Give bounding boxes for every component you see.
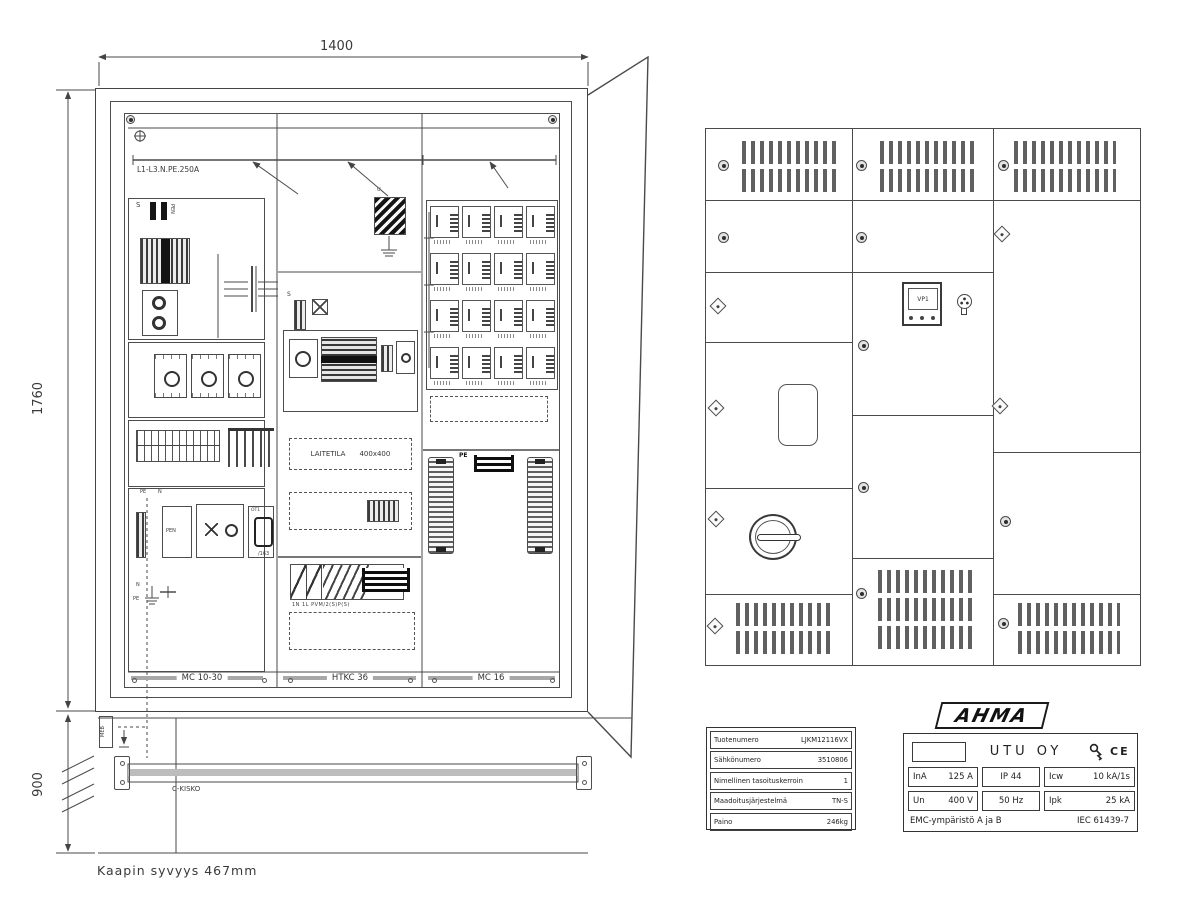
fuse-dial-small [401,353,411,363]
dim-width-label: 1400 [320,40,353,53]
s-mark-2: S [287,292,291,298]
row-value: 3510806 [818,756,848,764]
rating-cell-ip: IP 44 [982,767,1040,787]
cell-value: 25 kA [1106,796,1130,806]
meter-button[interactable] [909,316,913,320]
socket-module [462,253,491,285]
laitetila-label: LAITETILA [311,450,346,458]
meb-label: MEB [101,726,106,737]
reserved-space-3 [289,612,415,650]
cell-label: 50 Hz [999,796,1023,806]
socket-module [526,347,555,379]
depth-note: Kaapin syvyys 467mm [97,865,257,878]
row-label: Maadoitusjärjestelmä [714,797,787,805]
ventilation-grille [736,631,832,654]
fuse-dial [295,351,311,367]
terminal-strip [136,430,220,462]
mcb-module [291,565,307,599]
column-label-mc16: MC 16 [473,673,510,683]
s-mark: S [136,202,140,209]
table-row: Tuotenumero LJKM12116VX [710,731,852,749]
dim-height-label: 1760 [32,382,45,415]
socket-module [526,253,555,285]
row-label: Nimellinen tasoituskerroin [714,777,803,785]
socket-module [462,206,491,238]
row-value: TN-S [832,797,848,805]
product-info-table: Tuotenumero LJKM12116VX Sähkönumero 3510… [706,727,856,830]
busbar-label: L1-L3.N.PE.250A [137,166,199,174]
door-screw [858,482,869,493]
ventilation-grille [742,169,838,192]
standard-reference: IEC 61439-7 [1077,816,1129,826]
row-label: Paino [714,818,732,826]
busbar-block [362,568,410,592]
ventilation-grille [878,570,975,593]
meter-button[interactable] [920,316,924,320]
meb-box: MEB [99,716,113,748]
pen-device-label: PEN [166,529,176,534]
reserved-space-4 [430,396,548,422]
brand-plate: AHMA [935,702,1050,729]
pen-device: PEN [162,506,192,558]
door-screw [718,232,729,243]
socket-module [494,206,523,238]
socket-module [430,253,459,285]
cell-label: IP 44 [1000,772,1021,782]
door-handle-cutout[interactable] [778,384,818,446]
busbar-clamp [150,202,170,220]
rating-cell-un: Un 400 V [908,791,978,811]
wiring-duct [428,457,454,554]
cell-label: Ipk [1049,796,1062,806]
comb-busbar [228,428,274,467]
meter-button[interactable] [931,316,935,320]
row-label: Sähkönumero [714,756,761,764]
door-screw [856,232,867,243]
meter-screen: VP1 [908,288,938,310]
bracket-bolt [120,780,125,785]
table-row: Sähkönumero 3510806 [710,751,852,769]
bracket-bolt [582,780,587,785]
switch-dial [225,524,238,537]
panel-screw [126,115,135,124]
pen-label: PEN [169,204,174,214]
socket-module [430,206,459,238]
ventilation-grille [880,169,974,192]
bracket-bolt [120,761,125,766]
dim-base-label: 900 [32,772,45,797]
cell-label: Icw [1049,772,1063,782]
ventilation-grille [1018,631,1120,654]
door-screw [1000,516,1011,527]
small-bar-device [294,300,306,330]
c-rail-label: C-KISKO [172,786,200,793]
socket-module [526,206,555,238]
row-value: LJKM12116VX [801,736,848,744]
electrical-cabinet-drawing: 1400 1760 900 L1-L3.N.PE.250A S PEN PE N… [0,0,1200,924]
door-screw [856,160,867,171]
terminal-block [142,290,178,336]
strip-screw [432,678,437,683]
u-mark: U [377,188,381,193]
dev163-label: /163 [258,552,269,557]
mcb-module [306,565,322,599]
wiring-duct [527,457,553,554]
door-panel [705,272,853,343]
ventilation-grille [878,598,975,621]
table-row: Maadoitusjärjestelmä TN-S [710,792,852,810]
contactor [154,354,187,398]
transformer-core [161,239,170,283]
strip-screw [288,678,293,683]
rotary-switch-lever [757,534,801,541]
contactor [228,354,261,398]
door-panel [993,452,1141,595]
ventilation-grille [880,141,974,164]
switch-cross-mark [205,523,218,536]
cell-value: 10 kA/1s [1093,772,1130,782]
door-panel [852,415,994,559]
rating-cell-icw: Icw 10 kA/1s [1044,767,1135,787]
socket-module [526,300,555,332]
emc-environment-note: EMC-ympäristö A ja B [910,816,1002,826]
panel-screw [548,115,557,124]
fuse-switch-right-unit [396,341,415,374]
rating-cell-ipk: Ipk 25 kA [1044,791,1135,811]
pe-busbar [474,455,514,472]
pe-bus-label: PE [459,453,468,459]
pe-mark: PE [140,490,146,495]
socket-module [494,347,523,379]
main-switch-device [196,504,244,558]
row-value: 1 [844,777,848,785]
door-screw [998,618,1009,629]
rating-cell-hz: 50 Hz [982,791,1040,811]
ventilation-grille [1018,603,1120,626]
pe-mark-2: PE [133,597,139,602]
mcb-row-label: 1N 1L PVM/2(S)P(S) [292,603,350,608]
cross-device [312,299,328,315]
table-row: Nimellinen tasoituskerroin 1 [710,772,852,790]
cell-label: InA [913,772,927,782]
door-screw [856,588,867,599]
door-screw [998,160,1009,171]
ce-mark: CE [1110,745,1130,758]
ventilation-grille [878,626,975,649]
ventilation-grille [736,603,832,626]
aux-handle [254,517,273,547]
neutral-bar [136,512,146,558]
ot1-label: OT1 [251,509,260,514]
n-mark-2: N [136,583,140,588]
ventilation-grille [742,141,838,164]
laitetila-reserved-space: LAITETILA 400x400 [289,438,412,470]
fuse-switch-left-unit [289,339,318,378]
terminal-strip-midline [136,445,220,446]
row-label: Tuotenumero [714,736,759,744]
door-screw [718,160,729,171]
table-row: Paino 246kg [710,813,852,831]
strip-screw [408,678,413,683]
column-label-mc10-30: MC 10-30 [177,673,228,683]
rating-plate-logo-box [912,742,966,762]
socket-module [494,300,523,332]
door-panel [993,200,1141,453]
door-lock-icon[interactable] [957,294,972,309]
column-label-htkc36: HTKC 36 [327,673,373,683]
rail-bracket [576,756,592,790]
strip-screw [132,678,137,683]
cell-value: 125 A [948,772,973,782]
company-name: UTU OY [976,744,1076,759]
n-mark: N [158,490,162,495]
reserved-component [367,500,399,522]
door-screw [858,340,869,351]
fuse-switch-shaft [321,356,377,363]
door-lock-stem [961,308,967,315]
door-panel [852,200,994,273]
rotary-switch-handle[interactable] [749,514,797,560]
rail-bracket [114,756,130,790]
rating-plate: UTU OY CE InA 125 A IP 44 Icw 10 kA/1s U… [903,733,1138,832]
socket-module [462,347,491,379]
row-value: 246kg [827,818,848,826]
surge-arrester [374,197,406,235]
terminal-circle [152,316,166,330]
terminal-circle [152,296,166,310]
laitetila-size: 400x400 [359,450,390,458]
cell-value: 400 V [948,796,973,806]
socket-module [494,253,523,285]
vp1-meter: VP1 [902,282,942,326]
socket-module [430,300,459,332]
fi-key-mark-icon [1088,742,1106,762]
cell-label: Un [913,796,925,806]
ventilation-grille [1014,169,1116,192]
strip-screw [550,678,555,683]
contactor [191,354,224,398]
ventilation-grille [1014,141,1116,164]
strip-screw [262,678,267,683]
brand-name: AHMA [953,705,1031,727]
bracket-bolt [582,761,587,766]
fuse-switch-coupling [381,345,393,372]
socket-module [430,347,459,379]
socket-module [462,300,491,332]
rating-cell-ina: InA 125 A [908,767,978,787]
